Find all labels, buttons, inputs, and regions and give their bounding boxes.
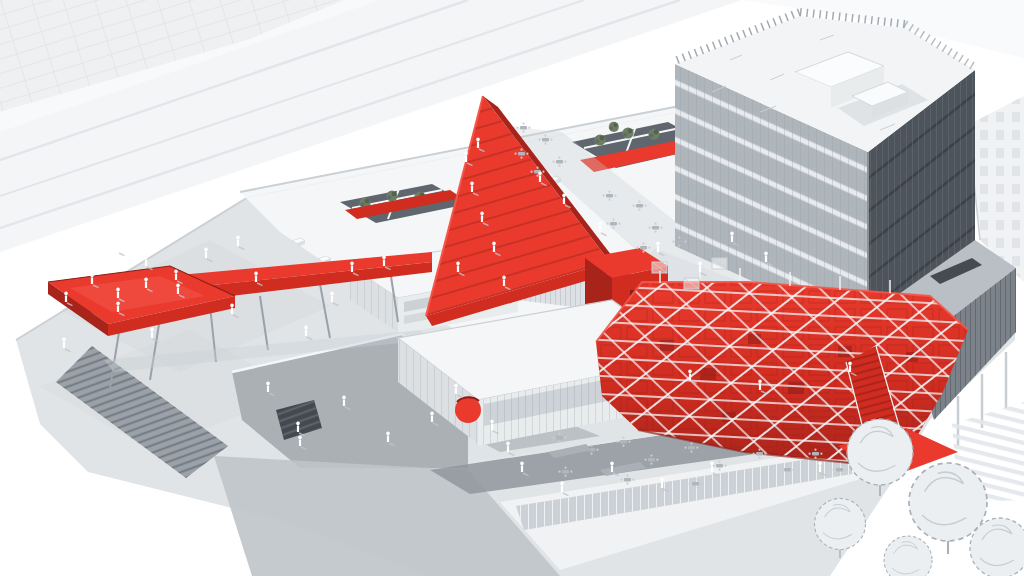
rendering-canvas bbox=[0, 0, 1024, 576]
architectural-rendering bbox=[0, 0, 1024, 576]
